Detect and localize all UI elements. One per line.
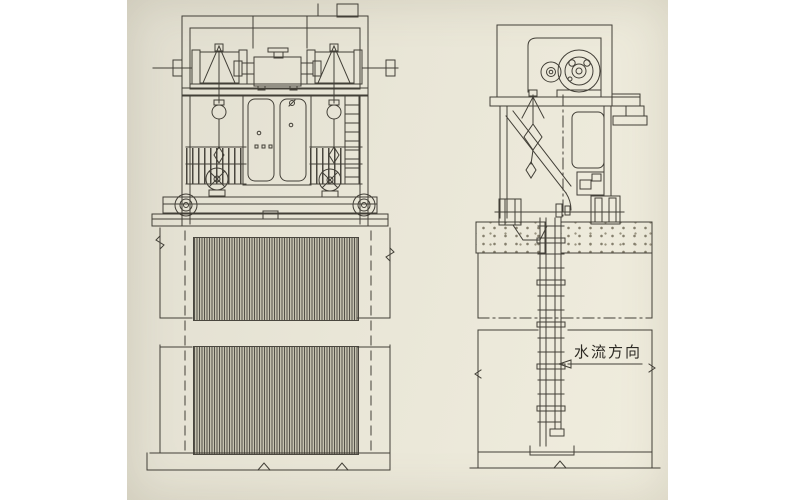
front-elevation-view <box>147 4 398 470</box>
flow-direction-annotation: 水流方向 <box>559 343 642 368</box>
scanned-drawing-page: 水流方向 <box>0 0 800 500</box>
intake-channel-front <box>147 228 394 470</box>
cable-winch-left <box>192 44 247 163</box>
platform-deck-side <box>490 94 647 125</box>
hoist-drum-wheel <box>558 50 600 92</box>
access-ladder-front <box>345 96 359 184</box>
hoist-house-side <box>497 25 612 97</box>
screen-cleaner-linework: 水流方向 <box>0 0 800 500</box>
hoist-house-frame <box>153 4 398 225</box>
rake-sheave-left <box>206 168 228 196</box>
cable-winch-right <box>307 44 362 163</box>
carriage-frame-side <box>500 106 611 218</box>
access-doors <box>243 96 311 185</box>
side-elevation-view: 水流方向 <box>470 25 660 468</box>
rake-chain-ladder <box>530 218 574 455</box>
rake-trolley-side <box>522 90 563 216</box>
flow-direction-label: 水流方向 <box>574 343 642 361</box>
travel-wheels-side <box>495 172 624 225</box>
rake-sheave-right <box>319 169 341 197</box>
travelling-carriage <box>152 194 388 226</box>
